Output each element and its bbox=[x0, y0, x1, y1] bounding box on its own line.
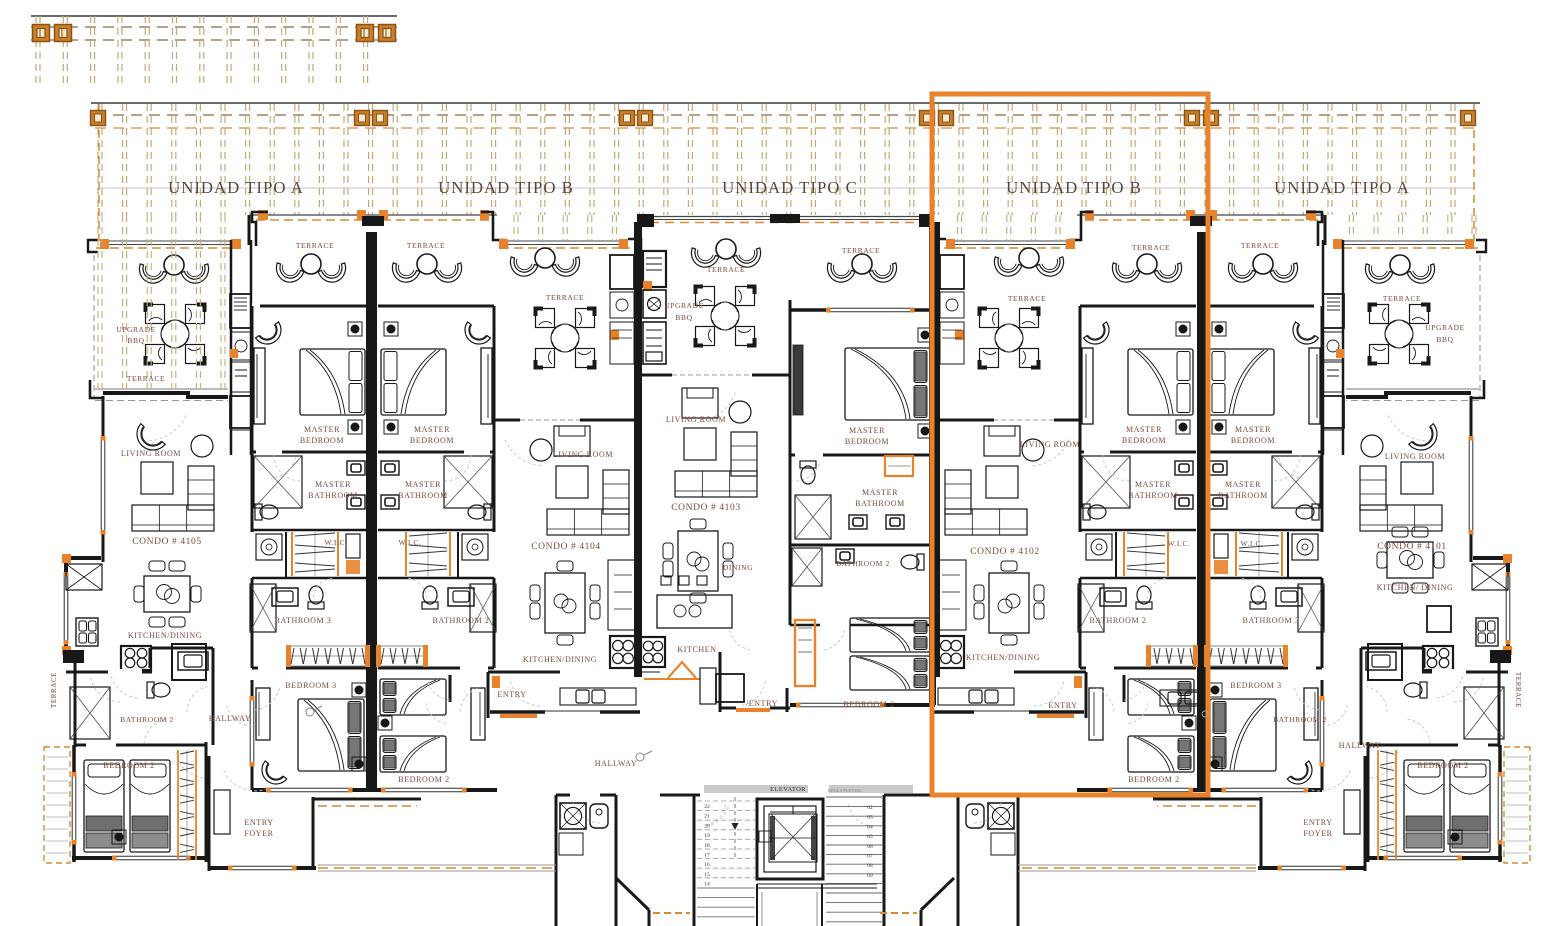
svg-text:BATHROOM 2: BATHROOM 2 bbox=[120, 715, 174, 724]
svg-text:FOYER: FOYER bbox=[1303, 829, 1332, 838]
svg-text:REGLA PLUVIAL: REGLA PLUVIAL bbox=[828, 788, 862, 793]
svg-text:BEDROOM 2: BEDROOM 2 bbox=[398, 775, 449, 784]
svg-text:TERRACE: TERRACE bbox=[1132, 243, 1170, 252]
svg-text:CONDO # 4105: CONDO # 4105 bbox=[132, 537, 201, 547]
svg-text:DINING: DINING bbox=[723, 563, 753, 572]
svg-text:BBQ: BBQ bbox=[127, 336, 144, 345]
svg-text:16: 16 bbox=[704, 862, 710, 868]
svg-text:BATHROOM 2: BATHROOM 2 bbox=[1273, 715, 1327, 724]
svg-text:FOYER: FOYER bbox=[244, 829, 273, 838]
svg-text:MASTER: MASTER bbox=[1225, 480, 1261, 489]
svg-text:UPGRADE: UPGRADE bbox=[664, 301, 704, 310]
svg-text:ENTRY: ENTRY bbox=[497, 690, 526, 699]
svg-text:BEDROOM 3: BEDROOM 3 bbox=[1230, 681, 1281, 690]
svg-text:BEDROOM 2: BEDROOM 2 bbox=[843, 700, 894, 709]
svg-text:TERRACE: TERRACE bbox=[1008, 294, 1046, 303]
svg-text:W.I.C.: W.I.C. bbox=[1240, 539, 1263, 548]
svg-text:MASTER: MASTER bbox=[1135, 480, 1171, 489]
svg-text:BATHROOM 2: BATHROOM 2 bbox=[836, 559, 890, 568]
svg-text:BATHROOM 2: BATHROOM 2 bbox=[433, 616, 490, 625]
svg-text:TERRACE: TERRACE bbox=[1383, 294, 1421, 303]
svg-text:/ENTRY: /ENTRY bbox=[746, 699, 778, 708]
svg-text:BATHROOM: BATHROOM bbox=[308, 491, 358, 500]
svg-text:HALLWAY: HALLWAY bbox=[209, 714, 251, 723]
svg-text:21: 21 bbox=[704, 814, 710, 820]
svg-text:09: 09 bbox=[867, 873, 873, 879]
svg-text:05: 05 bbox=[867, 834, 873, 840]
svg-text:BEDROOM 2: BEDROOM 2 bbox=[103, 761, 154, 770]
svg-text:KITCHEN/ DINING: KITCHEN/ DINING bbox=[1377, 583, 1454, 592]
svg-text:TERRACE: TERRACE bbox=[1241, 241, 1279, 250]
svg-text:CONDO # 4101: CONDO # 4101 bbox=[1377, 542, 1446, 552]
svg-text:BATHROOM 3: BATHROOM 3 bbox=[275, 616, 332, 625]
svg-text:TERRACE: TERRACE bbox=[127, 374, 165, 383]
svg-text:LIVING ROOM: LIVING ROOM bbox=[1385, 452, 1445, 461]
svg-text:KITCHEN: KITCHEN bbox=[677, 645, 716, 654]
svg-text:ENTRY: ENTRY bbox=[1303, 818, 1332, 827]
svg-text:17: 17 bbox=[704, 853, 710, 859]
svg-text:CONDO # 4102: CONDO # 4102 bbox=[970, 547, 1039, 557]
svg-text:LIVING ROOM: LIVING ROOM bbox=[121, 449, 181, 458]
svg-text:08: 08 bbox=[867, 863, 873, 869]
svg-text:KITCHEN/DINING: KITCHEN/DINING bbox=[523, 655, 597, 664]
svg-text:BATHROOM: BATHROOM bbox=[1128, 491, 1178, 500]
svg-text:CONDO # 4104: CONDO # 4104 bbox=[531, 542, 600, 552]
svg-text:BBQ: BBQ bbox=[675, 313, 692, 322]
svg-text:W.I.C.: W.I.C. bbox=[324, 538, 347, 547]
svg-text:UNIDAD TIPO C: UNIDAD TIPO C bbox=[722, 178, 858, 197]
svg-text:TERRACE: TERRACE bbox=[296, 241, 334, 250]
svg-text:BEDROOM: BEDROOM bbox=[845, 437, 889, 446]
svg-text:KITCHEN/DINING: KITCHEN/DINING bbox=[966, 653, 1040, 662]
svg-text:BEDROOM: BEDROOM bbox=[1231, 436, 1275, 445]
svg-text:BATHROOM: BATHROOM bbox=[398, 491, 448, 500]
svg-text:06: 06 bbox=[867, 844, 873, 850]
svg-text:MASTER: MASTER bbox=[315, 480, 351, 489]
svg-text:CONDO # 4103: CONDO # 4103 bbox=[671, 503, 740, 513]
svg-text:15: 15 bbox=[704, 872, 710, 878]
svg-text:BATHROOM 3: BATHROOM 3 bbox=[1243, 616, 1300, 625]
svg-text:BEDROOM 2: BEDROOM 2 bbox=[1128, 775, 1179, 784]
svg-text:22: 22 bbox=[704, 804, 710, 810]
svg-text:ENTRY: ENTRY bbox=[1048, 701, 1077, 710]
svg-text:TERRACE: TERRACE bbox=[407, 241, 445, 250]
svg-text:TERRACE: TERRACE bbox=[707, 265, 745, 274]
svg-text:BEDROOM: BEDROOM bbox=[300, 436, 344, 445]
svg-text:TERRACE: TERRACE bbox=[842, 246, 880, 255]
svg-text:19: 19 bbox=[704, 833, 710, 839]
svg-text:HALLWAY: HALLWAY bbox=[595, 759, 637, 768]
svg-text:W.I.C.: W.I.C. bbox=[398, 538, 421, 547]
svg-text:LIVING ROOM: LIVING ROOM bbox=[666, 415, 726, 424]
svg-text:BATHROOM: BATHROOM bbox=[855, 499, 905, 508]
svg-text:02: 02 bbox=[867, 805, 873, 811]
svg-text:UNIDAD TIPO B: UNIDAD TIPO B bbox=[438, 178, 574, 197]
svg-text:UNIDAD TIPO A: UNIDAD TIPO A bbox=[1274, 178, 1410, 197]
svg-text:HALLWAY: HALLWAY bbox=[1339, 741, 1381, 750]
svg-text:TERRACE: TERRACE bbox=[50, 672, 58, 708]
svg-text:KITCHEN/DINING: KITCHEN/DINING bbox=[128, 631, 202, 640]
svg-text:LIVING ROOM: LIVING ROOM bbox=[1020, 440, 1080, 449]
svg-text:BEDROOM: BEDROOM bbox=[1122, 436, 1166, 445]
svg-text:ELEVATOR: ELEVATOR bbox=[770, 786, 806, 793]
svg-text:MASTER: MASTER bbox=[414, 425, 450, 434]
svg-text:18: 18 bbox=[704, 843, 710, 849]
svg-text:BEDROOM 3: BEDROOM 3 bbox=[285, 681, 336, 690]
svg-text:BATHROOM 2: BATHROOM 2 bbox=[1090, 616, 1147, 625]
svg-text:UNIDAD TIPO A: UNIDAD TIPO A bbox=[168, 178, 304, 197]
svg-text:MASTER: MASTER bbox=[405, 480, 441, 489]
svg-text:TERRACE: TERRACE bbox=[1514, 672, 1522, 708]
svg-text:MASTER: MASTER bbox=[1235, 425, 1271, 434]
svg-text:MASTER: MASTER bbox=[862, 488, 898, 497]
svg-text:MASTER: MASTER bbox=[1126, 425, 1162, 434]
svg-text:BBQ: BBQ bbox=[1436, 335, 1453, 344]
svg-text:07: 07 bbox=[867, 854, 873, 860]
svg-text:MASTER: MASTER bbox=[849, 426, 885, 435]
svg-text:UNIDAD TIPO B: UNIDAD TIPO B bbox=[1006, 178, 1142, 197]
svg-text:BATHROOM: BATHROOM bbox=[1218, 491, 1268, 500]
svg-text:BEDROOM: BEDROOM bbox=[410, 436, 454, 445]
svg-text:03: 03 bbox=[867, 815, 873, 821]
svg-text:TERRACE: TERRACE bbox=[546, 293, 584, 302]
svg-text:LIVING ROOM: LIVING ROOM bbox=[553, 450, 613, 459]
svg-text:04: 04 bbox=[867, 824, 873, 830]
svg-text:UPGRADE: UPGRADE bbox=[1425, 323, 1465, 332]
svg-text:ENTRY: ENTRY bbox=[244, 818, 273, 827]
svg-text:UPGRADE: UPGRADE bbox=[116, 325, 156, 334]
svg-text:MASTER: MASTER bbox=[304, 425, 340, 434]
svg-text:BEDROOM 2: BEDROOM 2 bbox=[1417, 761, 1468, 770]
svg-text:14: 14 bbox=[704, 882, 710, 888]
svg-text:W.I.C.: W.I.C. bbox=[1167, 539, 1190, 548]
